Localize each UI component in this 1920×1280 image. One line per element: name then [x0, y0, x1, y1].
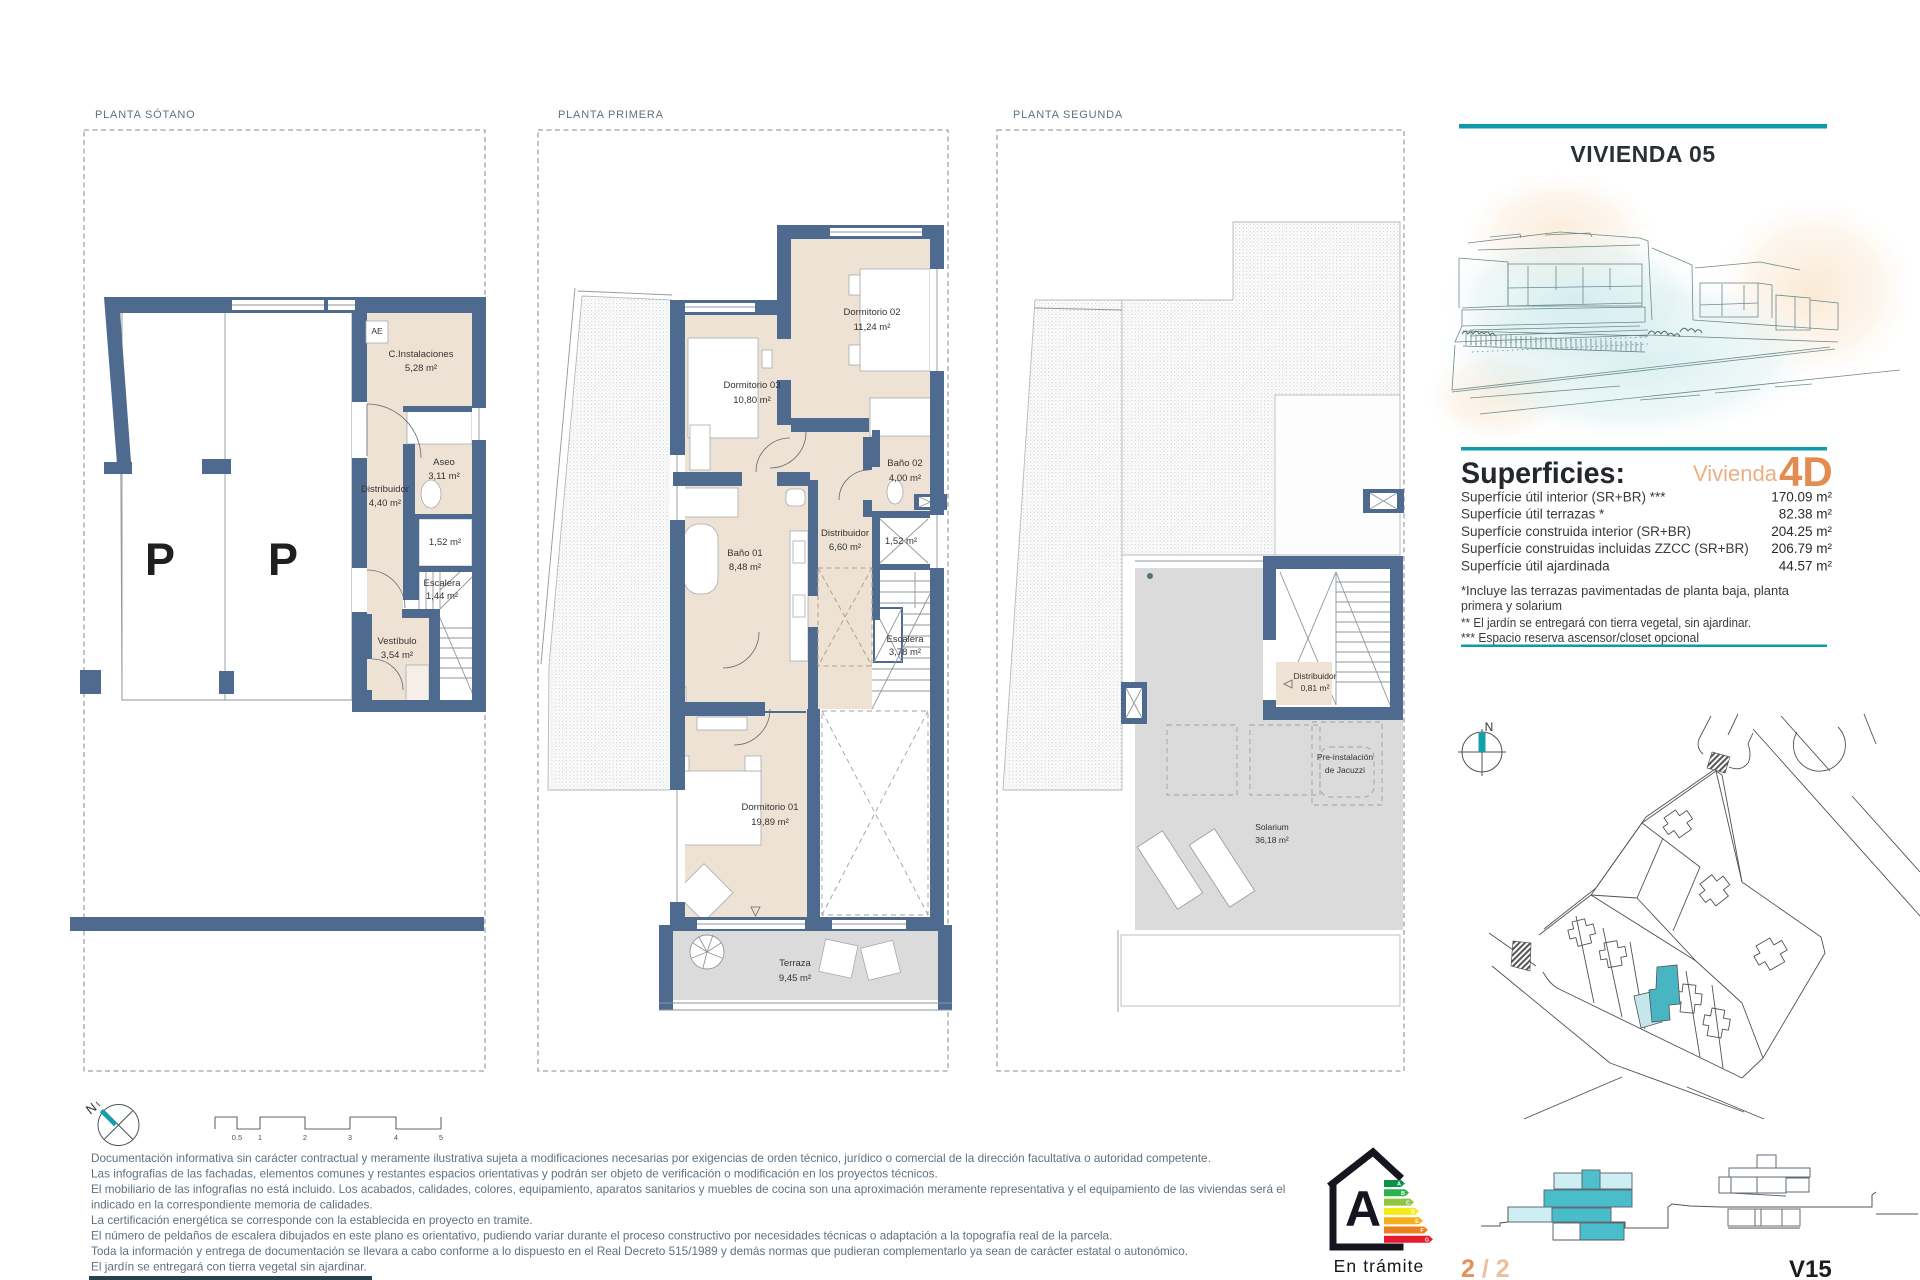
svg-text:10,80 m²: 10,80 m²	[733, 395, 771, 406]
svg-text:AE: AE	[371, 326, 383, 336]
svg-text:Toda la información y entrega: Toda la información y entrega de documen…	[91, 1244, 1188, 1258]
svg-text:V15: V15	[1789, 1256, 1832, 1280]
svg-text:B: B	[1401, 1191, 1405, 1197]
svg-text:19,89 m²: 19,89 m²	[751, 817, 789, 828]
svg-text:Superfície útil terrazas *: Superfície útil terrazas *	[1461, 507, 1605, 522]
svg-text:Distribuidor: Distribuidor	[361, 484, 409, 495]
svg-text:2 / 2: 2 / 2	[1461, 1255, 1510, 1280]
svg-text:Superfície útil ajardinada: Superfície útil ajardinada	[1461, 558, 1610, 573]
svg-text:Distribuidor: Distribuidor	[1294, 671, 1337, 681]
svg-text:2: 2	[303, 1133, 307, 1142]
svg-text:204.25 m²: 204.25 m²	[1771, 524, 1832, 539]
svg-text:primera y solarium: primera y solarium	[1461, 599, 1562, 613]
svg-text:En trámite: En trámite	[1334, 1256, 1425, 1276]
svg-text:C.Instalaciones: C.Instalaciones	[389, 349, 454, 360]
svg-text:El jardín se entregará con tie: El jardín se entregará con tierra vegeta…	[91, 1259, 367, 1273]
svg-text:Superficies:: Superficies:	[1461, 457, 1625, 490]
svg-text:1,52 m²: 1,52 m²	[885, 536, 917, 547]
svg-text:Superfície construidas incluid: Superfície construidas incluidas ZZCC (S…	[1461, 541, 1749, 556]
svg-text:9,45 m²: 9,45 m²	[779, 973, 811, 984]
svg-text:11,24 m²: 11,24 m²	[854, 322, 891, 333]
svg-text:El mobiliario de las infografi: El mobiliario de las infografias no está…	[91, 1182, 1285, 1196]
svg-text:4: 4	[394, 1133, 398, 1142]
svg-text:6,60 m²: 6,60 m²	[829, 542, 861, 553]
svg-text:8,48 m²: 8,48 m²	[729, 562, 761, 573]
svg-text:1: 1	[258, 1133, 262, 1142]
svg-text:Documentación informativa sin: Documentación informativa sin carácter c…	[91, 1151, 1211, 1165]
svg-text:PLANTA PRIMERA: PLANTA PRIMERA	[558, 109, 664, 121]
svg-text:Distribuidor: Distribuidor	[821, 528, 869, 539]
svg-text:5: 5	[439, 1133, 443, 1142]
svg-text:3: 3	[348, 1133, 352, 1142]
svg-text:Las infografias de las fachada: Las infografias de las fachadas, element…	[91, 1166, 938, 1180]
svg-text:Vivienda: Vivienda	[1693, 461, 1778, 486]
svg-text:Dormitorio 01: Dormitorio 01	[741, 802, 798, 813]
svg-text:C: C	[1406, 1200, 1410, 1206]
svg-text:36,18 m²: 36,18 m²	[1255, 835, 1289, 845]
svg-text:A: A	[1345, 1181, 1381, 1237]
svg-text:3,54 m²: 3,54 m²	[381, 650, 413, 661]
svg-text:VIVIENDA 05: VIVIENDA 05	[1570, 141, 1715, 167]
svg-text:Dormitorio 02: Dormitorio 02	[843, 307, 900, 318]
svg-text:4,00 m²: 4,00 m²	[889, 473, 921, 484]
svg-text:E: E	[1415, 1219, 1419, 1225]
svg-text:P: P	[268, 534, 298, 585]
svg-text:Superfície construida interior: Superfície construida interior (SR+BR)	[1461, 524, 1691, 539]
svg-text:44.57 m²: 44.57 m²	[1779, 558, 1833, 573]
svg-text:N: N	[1485, 720, 1494, 734]
svg-text:4,40 m²: 4,40 m²	[369, 498, 401, 509]
svg-text:Pre-instalación: Pre-instalación	[1317, 752, 1373, 762]
svg-text:La certificación energética se: La certificación energética se correspon…	[91, 1213, 533, 1227]
svg-text:Baño 02: Baño 02	[887, 458, 922, 469]
svg-text:Solarium: Solarium	[1255, 822, 1289, 832]
svg-text:** El jardín se entregará con: ** El jardín se entregará con tierra veg…	[1461, 616, 1751, 630]
svg-text:3,78 m²: 3,78 m²	[889, 647, 921, 658]
svg-text:Dormitorio 03: Dormitorio 03	[723, 380, 780, 391]
svg-text:206.79 m²: 206.79 m²	[1771, 541, 1832, 556]
svg-text:*Incluye las terrazas paviment: *Incluye las terrazas pavimentadas de pl…	[1461, 584, 1789, 598]
svg-text:3,11 m²: 3,11 m²	[428, 471, 460, 482]
svg-text:0,81 m²: 0,81 m²	[1301, 683, 1330, 693]
svg-text:Aseo: Aseo	[433, 457, 455, 468]
svg-text:de Jacuzzi: de Jacuzzi	[1325, 765, 1365, 775]
svg-text:Vestíbulo: Vestíbulo	[377, 636, 416, 647]
svg-text:5,28 m²: 5,28 m²	[405, 363, 437, 374]
svg-text:Superfície útil interior (SR+B: Superfície útil interior (SR+BR) ***	[1461, 490, 1666, 505]
svg-text:G: G	[1425, 1238, 1429, 1244]
svg-text:N: N	[83, 1100, 100, 1118]
svg-text:82.38 m²: 82.38 m²	[1779, 507, 1833, 522]
svg-text:P: P	[145, 534, 175, 585]
svg-text:A: A	[1397, 1182, 1401, 1188]
svg-text:0.5: 0.5	[232, 1133, 242, 1142]
svg-text:Baño 01: Baño 01	[727, 548, 762, 559]
svg-text:Escalera: Escalera	[424, 578, 462, 589]
svg-text:1,44 m²: 1,44 m²	[426, 591, 458, 602]
svg-text:*** Espacio reserva ascensor/c: *** Espacio reserva ascensor/closet opci…	[1461, 631, 1699, 645]
svg-text:Escalera: Escalera	[887, 634, 925, 645]
svg-text:PLANTA SEGUNDA: PLANTA SEGUNDA	[1013, 109, 1123, 121]
svg-text:D: D	[1411, 1210, 1415, 1216]
svg-text:1,52 m²: 1,52 m²	[429, 537, 461, 548]
svg-text:Terraza: Terraza	[779, 958, 811, 969]
svg-text:4D: 4D	[1779, 448, 1833, 495]
svg-text:El número de peldaños de escal: El número de peldaños de escalera dibuja…	[91, 1228, 1112, 1242]
svg-text:PLANTA SÓTANO: PLANTA SÓTANO	[95, 108, 195, 121]
svg-text:170.09 m²: 170.09 m²	[1771, 490, 1832, 505]
svg-text:indicado en la correspondiente: indicado en la correspondiente memoria d…	[91, 1197, 373, 1211]
